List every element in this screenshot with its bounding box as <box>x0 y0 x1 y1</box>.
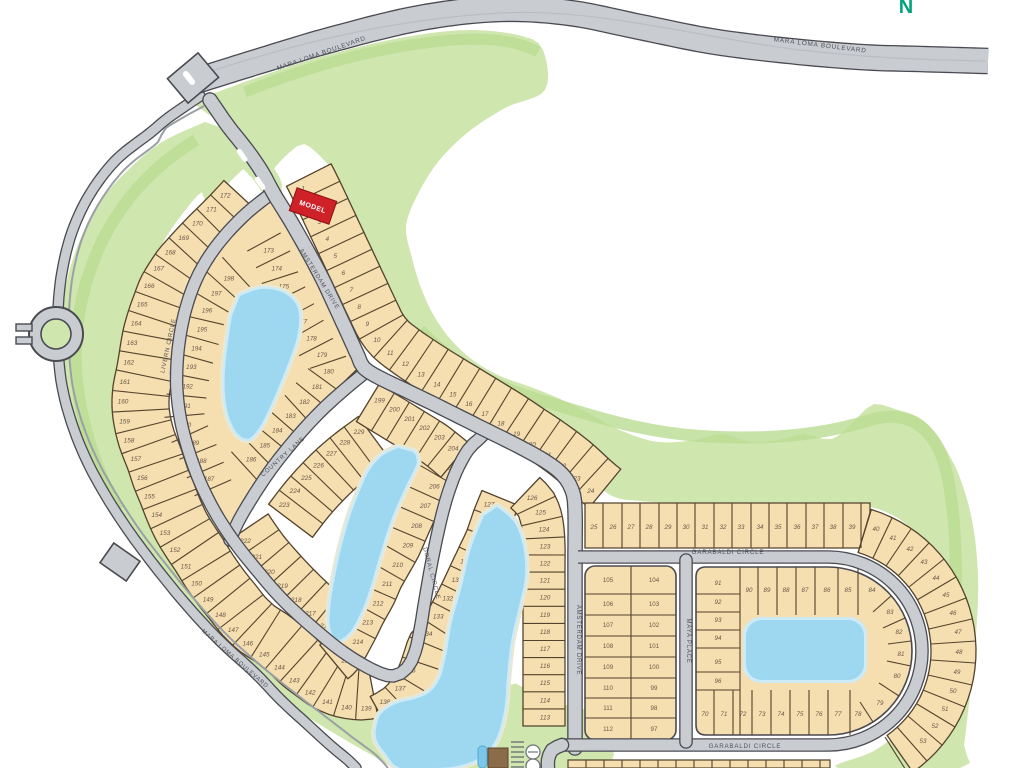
svg-text:101: 101 <box>649 643 660 650</box>
svg-text:92: 92 <box>715 599 722 606</box>
svg-text:140: 140 <box>341 705 352 712</box>
svg-text:105: 105 <box>603 577 614 584</box>
svg-text:212: 212 <box>372 601 384 608</box>
svg-text:36: 36 <box>794 524 801 531</box>
svg-text:5: 5 <box>334 253 338 260</box>
svg-text:114: 114 <box>540 697 551 704</box>
svg-text:93: 93 <box>715 617 722 624</box>
svg-text:86: 86 <box>824 587 831 594</box>
svg-text:141: 141 <box>322 699 333 706</box>
svg-text:97: 97 <box>651 726 658 733</box>
svg-text:13: 13 <box>417 372 425 379</box>
svg-text:112: 112 <box>603 726 613 733</box>
svg-text:70: 70 <box>702 711 709 718</box>
svg-text:38: 38 <box>830 524 837 531</box>
svg-text:102: 102 <box>649 622 660 629</box>
svg-text:151: 151 <box>181 564 192 571</box>
svg-text:4: 4 <box>326 236 330 243</box>
svg-text:142: 142 <box>305 689 316 696</box>
svg-text:73: 73 <box>759 711 766 718</box>
svg-text:75: 75 <box>797 711 804 718</box>
svg-text:184: 184 <box>272 427 283 434</box>
svg-text:16: 16 <box>465 401 473 408</box>
svg-text:40: 40 <box>873 526 880 533</box>
svg-text:50: 50 <box>950 688 957 695</box>
svg-text:31: 31 <box>702 524 709 531</box>
svg-text:125: 125 <box>535 510 546 517</box>
svg-text:GARABALDI CIRCLE: GARABALDI CIRCLE <box>692 549 765 556</box>
svg-text:160: 160 <box>118 399 129 406</box>
svg-text:214: 214 <box>352 639 364 646</box>
svg-text:34: 34 <box>757 524 764 531</box>
svg-text:10: 10 <box>373 337 381 344</box>
svg-text:157: 157 <box>130 456 141 463</box>
svg-text:12: 12 <box>402 361 410 368</box>
svg-text:185: 185 <box>260 442 271 449</box>
svg-text:91: 91 <box>715 580 722 587</box>
svg-text:179: 179 <box>317 352 328 359</box>
svg-text:78: 78 <box>855 711 862 718</box>
svg-text:158: 158 <box>124 438 135 445</box>
svg-text:14: 14 <box>433 382 441 389</box>
svg-text:194: 194 <box>191 345 202 352</box>
svg-text:144: 144 <box>274 664 285 671</box>
svg-text:MAYA PLACE: MAYA PLACE <box>685 618 691 663</box>
svg-text:107: 107 <box>603 622 614 629</box>
svg-text:213: 213 <box>361 620 373 627</box>
svg-text:GARABALDI CIRCLE: GARABALDI CIRCLE <box>709 743 782 750</box>
svg-text:116: 116 <box>540 663 551 670</box>
svg-text:43: 43 <box>921 559 928 566</box>
svg-text:82: 82 <box>896 629 903 636</box>
svg-text:106: 106 <box>603 601 614 608</box>
svg-text:118: 118 <box>540 629 551 636</box>
svg-text:228: 228 <box>339 440 351 447</box>
svg-text:172: 172 <box>220 192 231 199</box>
svg-text:115: 115 <box>540 680 551 687</box>
svg-text:88: 88 <box>783 587 790 594</box>
svg-text:113: 113 <box>540 714 551 721</box>
svg-text:167: 167 <box>153 266 164 273</box>
svg-text:71: 71 <box>721 711 728 718</box>
svg-text:203: 203 <box>433 435 445 442</box>
svg-text:147: 147 <box>228 627 239 634</box>
svg-text:174: 174 <box>272 265 283 272</box>
svg-text:AMSTERDAM DRIVE: AMSTERDAM DRIVE <box>575 605 581 675</box>
svg-text:79: 79 <box>877 700 884 707</box>
svg-text:74: 74 <box>778 711 785 718</box>
svg-text:30: 30 <box>683 524 690 531</box>
svg-text:15: 15 <box>449 391 457 398</box>
svg-text:41: 41 <box>890 535 897 542</box>
svg-text:110: 110 <box>603 685 613 692</box>
svg-text:11: 11 <box>387 350 394 357</box>
svg-text:98: 98 <box>651 705 658 712</box>
svg-text:197: 197 <box>211 291 222 298</box>
svg-text:156: 156 <box>137 475 148 482</box>
svg-text:26: 26 <box>609 524 617 531</box>
svg-text:150: 150 <box>191 580 202 587</box>
svg-text:108: 108 <box>603 643 614 650</box>
svg-text:126: 126 <box>527 495 538 502</box>
svg-text:201: 201 <box>403 416 415 423</box>
svg-text:173: 173 <box>264 248 275 255</box>
svg-text:161: 161 <box>120 379 131 386</box>
svg-text:6: 6 <box>342 270 346 277</box>
svg-text:9: 9 <box>366 321 370 328</box>
svg-text:226: 226 <box>312 463 324 470</box>
svg-text:202: 202 <box>418 425 430 432</box>
svg-text:32: 32 <box>720 524 727 531</box>
svg-text:18: 18 <box>497 421 505 428</box>
svg-text:145: 145 <box>259 652 270 659</box>
svg-text:N: N <box>899 0 913 18</box>
svg-text:42: 42 <box>907 546 914 553</box>
svg-text:168: 168 <box>165 250 176 257</box>
svg-text:192: 192 <box>183 383 194 390</box>
svg-text:196: 196 <box>202 308 213 315</box>
svg-text:103: 103 <box>649 601 660 608</box>
svg-text:37: 37 <box>812 524 819 531</box>
svg-text:165: 165 <box>137 302 148 309</box>
svg-text:48: 48 <box>956 649 963 656</box>
svg-text:35: 35 <box>775 524 782 531</box>
svg-text:139: 139 <box>361 706 372 713</box>
svg-text:229: 229 <box>353 429 365 436</box>
svg-text:133: 133 <box>433 614 444 621</box>
svg-text:143: 143 <box>289 678 300 685</box>
svg-text:224: 224 <box>289 488 301 495</box>
svg-text:51: 51 <box>942 706 949 713</box>
svg-text:95: 95 <box>715 659 722 666</box>
svg-text:180: 180 <box>324 369 335 376</box>
svg-text:199: 199 <box>374 398 385 405</box>
svg-text:178: 178 <box>306 335 317 342</box>
svg-text:89: 89 <box>764 587 771 594</box>
svg-text:123: 123 <box>540 543 551 550</box>
svg-text:121: 121 <box>540 578 551 585</box>
svg-text:183: 183 <box>285 413 296 420</box>
svg-text:28: 28 <box>645 524 653 531</box>
svg-text:76: 76 <box>816 711 823 718</box>
svg-text:154: 154 <box>151 512 162 519</box>
svg-text:170: 170 <box>192 221 203 228</box>
svg-text:83: 83 <box>887 609 894 616</box>
svg-text:166: 166 <box>144 283 155 290</box>
svg-text:29: 29 <box>664 524 672 531</box>
svg-text:204: 204 <box>447 445 459 452</box>
svg-text:25: 25 <box>590 524 598 531</box>
svg-text:52: 52 <box>932 723 939 730</box>
svg-text:44: 44 <box>933 575 940 582</box>
svg-text:17: 17 <box>481 411 489 418</box>
svg-text:163: 163 <box>127 340 138 347</box>
svg-text:120: 120 <box>540 595 551 602</box>
svg-text:186: 186 <box>246 456 257 463</box>
svg-text:195: 195 <box>197 327 208 334</box>
svg-text:27: 27 <box>627 524 635 531</box>
svg-text:227: 227 <box>325 451 337 458</box>
svg-text:85: 85 <box>845 587 852 594</box>
svg-text:181: 181 <box>312 384 322 391</box>
svg-text:208: 208 <box>410 523 422 530</box>
svg-text:171: 171 <box>206 207 217 214</box>
svg-text:169: 169 <box>178 235 189 242</box>
svg-text:47: 47 <box>955 629 962 636</box>
svg-text:162: 162 <box>123 359 134 366</box>
svg-text:7: 7 <box>350 287 354 294</box>
svg-text:90: 90 <box>746 587 753 594</box>
svg-text:33: 33 <box>738 524 745 531</box>
svg-text:159: 159 <box>119 418 130 425</box>
svg-text:210: 210 <box>391 562 403 569</box>
svg-text:24: 24 <box>586 488 595 495</box>
svg-text:152: 152 <box>170 547 181 554</box>
svg-text:223: 223 <box>278 502 290 509</box>
svg-text:104: 104 <box>649 577 660 584</box>
svg-text:99: 99 <box>651 685 658 692</box>
svg-text:39: 39 <box>849 524 856 531</box>
svg-text:119: 119 <box>540 612 551 619</box>
svg-text:153: 153 <box>160 530 171 537</box>
svg-text:200: 200 <box>388 407 400 414</box>
svg-text:46: 46 <box>950 610 957 617</box>
svg-text:122: 122 <box>540 561 551 568</box>
svg-text:124: 124 <box>539 526 550 533</box>
svg-text:209: 209 <box>402 543 414 550</box>
svg-text:84: 84 <box>869 587 876 594</box>
svg-text:206: 206 <box>428 483 440 490</box>
svg-text:111: 111 <box>603 705 613 712</box>
svg-text:8: 8 <box>357 304 361 311</box>
svg-text:149: 149 <box>203 597 214 604</box>
svg-text:137: 137 <box>395 685 406 692</box>
svg-text:198: 198 <box>224 276 235 283</box>
svg-text:211: 211 <box>381 581 393 588</box>
svg-text:207: 207 <box>419 503 431 510</box>
svg-text:80: 80 <box>894 673 901 680</box>
svg-text:49: 49 <box>954 669 961 676</box>
svg-text:193: 193 <box>186 364 197 371</box>
svg-text:146: 146 <box>242 641 253 648</box>
svg-text:81: 81 <box>898 651 905 658</box>
svg-text:225: 225 <box>300 475 312 482</box>
svg-text:100: 100 <box>649 664 660 671</box>
svg-text:72: 72 <box>740 711 747 718</box>
svg-text:182: 182 <box>299 399 310 406</box>
svg-text:155: 155 <box>144 493 155 500</box>
svg-text:117: 117 <box>540 646 551 653</box>
svg-text:53: 53 <box>920 738 927 745</box>
svg-text:77: 77 <box>835 711 842 718</box>
svg-text:87: 87 <box>802 587 809 594</box>
svg-text:45: 45 <box>943 592 950 599</box>
svg-text:96: 96 <box>715 678 722 685</box>
svg-text:148: 148 <box>215 612 226 619</box>
svg-text:94: 94 <box>715 635 722 642</box>
svg-text:164: 164 <box>131 320 142 327</box>
svg-text:109: 109 <box>603 664 614 671</box>
svg-text:132: 132 <box>442 595 453 602</box>
